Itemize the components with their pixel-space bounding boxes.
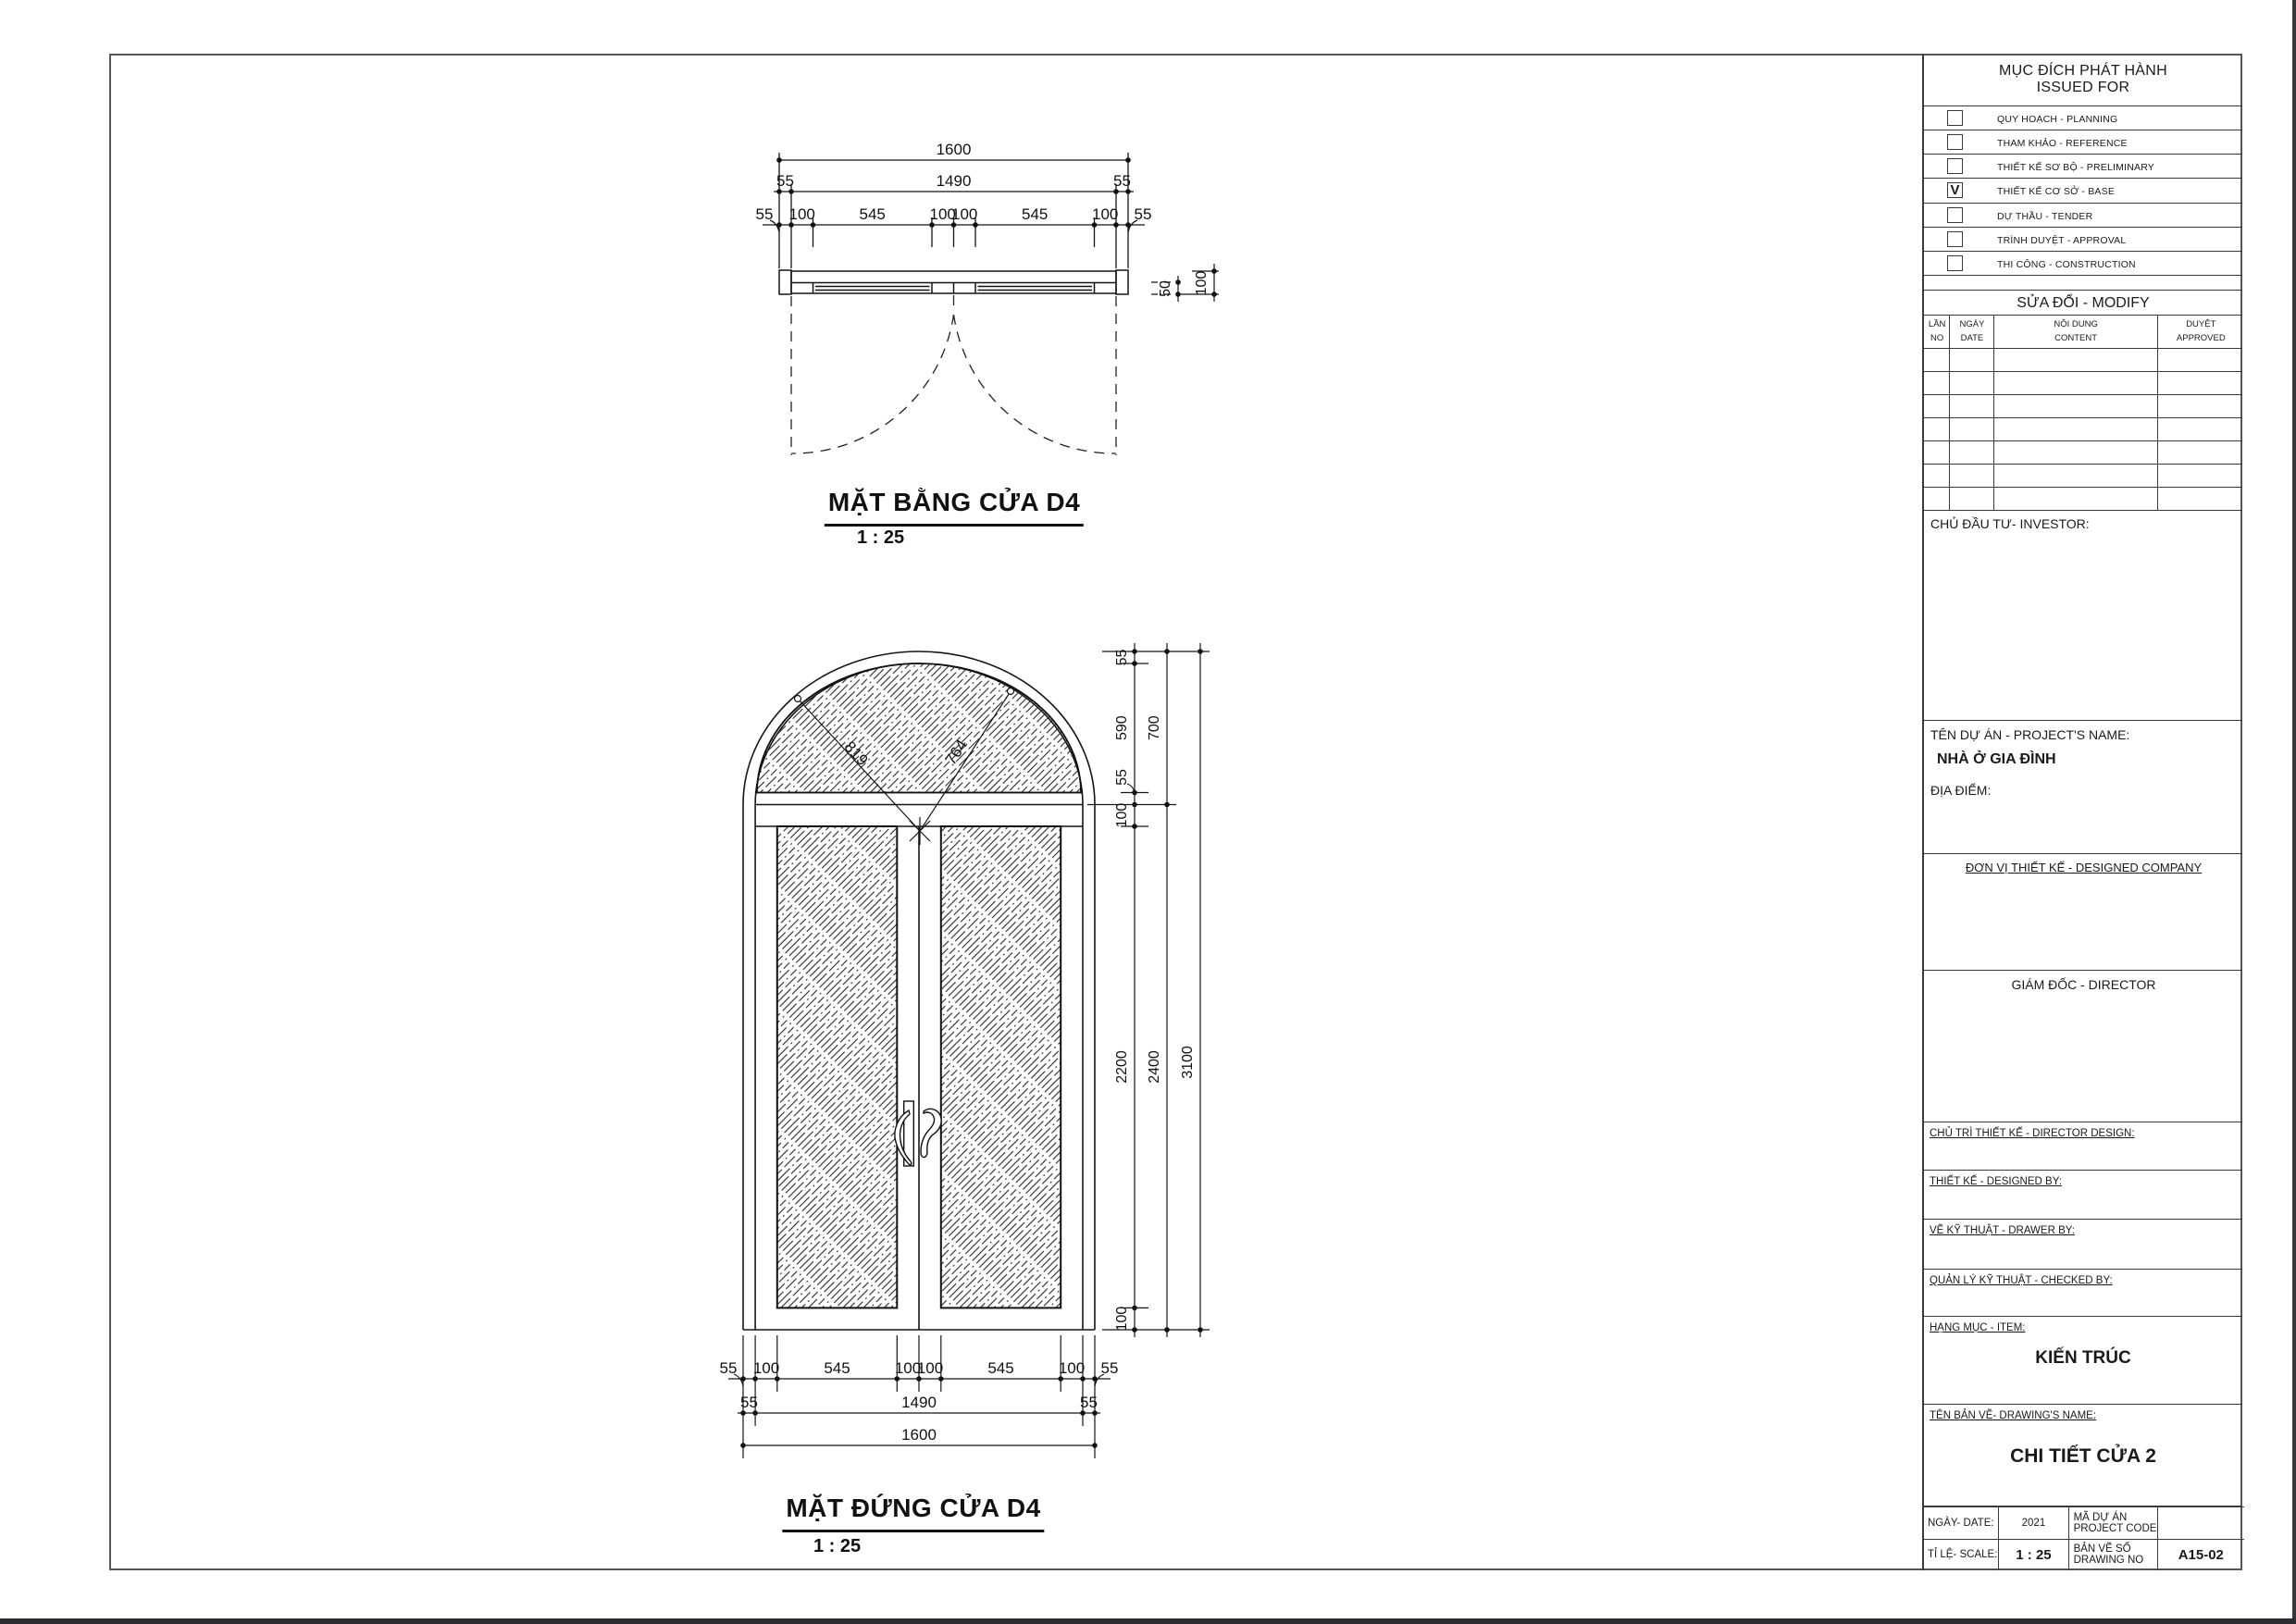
svg-text:55: 55 bbox=[720, 1359, 738, 1377]
checkbox-reference bbox=[1947, 134, 1963, 150]
drawing-no-label: BẢN VẼ SỐ DRAWING NO bbox=[2074, 1543, 2144, 1566]
company-label: ĐƠN VỊ THIẾT KẾ - DESIGNED COMPANY bbox=[1924, 854, 2242, 874]
svg-text:2400: 2400 bbox=[1147, 1050, 1162, 1084]
checkbox-construction bbox=[1947, 255, 1963, 271]
svg-text:545: 545 bbox=[1022, 205, 1048, 223]
project-label: TÊN DỰ ÁN - PROJECT'S NAME: bbox=[1924, 721, 2242, 742]
issued-for-row: V THIẾT KẾ CƠ SỞ - BASE bbox=[1924, 179, 2242, 203]
drawing-name-label: TÊN BẢN VẼ- DRAWING'S NAME: bbox=[1924, 1405, 2242, 1421]
issued-for-row: QUY HOẠCH - PLANNING bbox=[1924, 106, 2242, 130]
svg-text:545: 545 bbox=[860, 205, 886, 223]
door-handles bbox=[895, 1101, 941, 1166]
plan-dimensions: 1600 55 1490 55 55 100 545 100 100 545 1… bbox=[756, 141, 1152, 223]
svg-text:55: 55 bbox=[776, 172, 794, 190]
checkbox-tender bbox=[1947, 207, 1963, 223]
director-label: GIÁM ĐỐC - DIRECTOR bbox=[1924, 971, 2242, 992]
svg-text:1490: 1490 bbox=[901, 1394, 937, 1411]
location-label: ĐỊA ĐIỂM: bbox=[1924, 768, 2242, 798]
checkbox-base-checked: V bbox=[1947, 182, 1963, 198]
plan-view-title: MẶT BẰNG CỬA D4 bbox=[825, 488, 1084, 527]
issued-for-row: TRÌNH DUYỆT - APPROVAL bbox=[1924, 228, 2242, 252]
issued-for-header: MỤC ĐÍCH PHÁT HÀNH ISSUED FOR bbox=[1924, 54, 2242, 106]
svg-text:2200: 2200 bbox=[1114, 1050, 1130, 1084]
project-name: NHÀ Ở GIA ĐÌNH bbox=[1924, 742, 2242, 768]
svg-text:1490: 1490 bbox=[937, 172, 972, 190]
issued-for-row: THIẾT KẾ SƠ BỘ - PRELIMINARY bbox=[1924, 155, 2242, 179]
right-handle-lever bbox=[921, 1109, 941, 1157]
checkbox-preliminary bbox=[1947, 158, 1963, 174]
item-label: HẠNG MỤC - ITEM: bbox=[1924, 1317, 2242, 1333]
designed-by-section: THIẾT KẾ - DESIGNED BY: bbox=[1924, 1171, 2242, 1220]
drawing-name-value: CHI TIẾT CỬA 2 bbox=[1924, 1445, 2242, 1468]
project-code-label: MÃ DỰ ÁN PROJECT CODE bbox=[2074, 1512, 2157, 1534]
elevation-dim-total-height: 3100 bbox=[1180, 1046, 1196, 1079]
plan-view-scale: 1 : 25 bbox=[857, 527, 904, 549]
page-edge-bottom bbox=[0, 1618, 2296, 1624]
fanlight-glass bbox=[757, 663, 1081, 793]
svg-text:100: 100 bbox=[1114, 1307, 1130, 1332]
modify-table: LẦN NO NGÀY DATE NỘI DUNG CONTENT DUYỆT … bbox=[1924, 316, 2242, 510]
svg-text:545: 545 bbox=[824, 1359, 850, 1377]
date-value: 2021 bbox=[1999, 1506, 2068, 1539]
svg-text:55: 55 bbox=[1114, 650, 1130, 666]
scale-value: 1 : 25 bbox=[1999, 1539, 2068, 1571]
director-section: GIÁM ĐỐC - DIRECTOR bbox=[1924, 971, 2242, 1122]
issued-for-title-en: ISSUED FOR bbox=[1924, 80, 2242, 96]
svg-text:700: 700 bbox=[1147, 715, 1162, 740]
title-block: MỤC ĐÍCH PHÁT HÀNH ISSUED FOR QUY HOẠCH … bbox=[1922, 54, 2242, 1570]
drawing-name-section: TÊN BẢN VẼ- DRAWING'S NAME: CHI TIẾT CỬA… bbox=[1924, 1405, 2242, 1506]
plan-dim-leaf-thickness: 50 bbox=[1158, 280, 1173, 297]
checkbox-planning bbox=[1947, 110, 1963, 126]
svg-text:55: 55 bbox=[1135, 205, 1152, 223]
modify-header: SỬA ĐỔI - MODIFY bbox=[1924, 290, 2242, 316]
plan-dim-wall-thickness: 100 bbox=[1194, 271, 1210, 296]
investor-label: CHỦ ĐẦU TƯ- INVESTOR: bbox=[1924, 510, 2242, 531]
elevation-dim-total-width: 1600 bbox=[901, 1426, 937, 1444]
svg-text:55: 55 bbox=[1101, 1359, 1119, 1377]
left-leaf-glass bbox=[777, 826, 898, 1308]
svg-text:100: 100 bbox=[789, 205, 815, 223]
svg-text:100: 100 bbox=[1092, 205, 1118, 223]
checker-label: QUẢN LÝ KỸ THUẬT - CHECKED BY: bbox=[1924, 1270, 2242, 1286]
project-section: TÊN DỰ ÁN - PROJECT'S NAME: NHÀ Ở GIA ĐÌ… bbox=[1924, 721, 2242, 854]
svg-text:545: 545 bbox=[987, 1359, 1013, 1377]
svg-text:100: 100 bbox=[753, 1359, 779, 1377]
right-leaf-glass bbox=[941, 826, 1061, 1308]
svg-text:55: 55 bbox=[1113, 172, 1131, 190]
elevation-right-dims bbox=[1087, 643, 1210, 1337]
svg-text:55: 55 bbox=[756, 205, 774, 223]
issued-for-row: DỰ THẦU - TENDER bbox=[1924, 204, 2242, 228]
svg-text:100: 100 bbox=[1059, 1359, 1085, 1377]
plan-dim-total: 1600 bbox=[937, 141, 972, 158]
issued-for-row: THI CÔNG - CONSTRUCTION bbox=[1924, 252, 2242, 276]
elevation-view-scale: 1 : 25 bbox=[813, 1536, 861, 1557]
issued-for-title-vi: MỤC ĐÍCH PHÁT HÀNH bbox=[1924, 63, 2242, 80]
investor-section: CHỦ ĐẦU TƯ- INVESTOR: bbox=[1924, 510, 2242, 721]
issued-for-row: THAM KHẢO - REFERENCE bbox=[1924, 130, 2242, 155]
svg-text:55: 55 bbox=[1080, 1394, 1098, 1411]
director-design-section: CHỦ TRÌ THIẾT KẾ - DIRECTOR DESIGN: bbox=[1924, 1122, 2242, 1171]
director-design-label: CHỦ TRÌ THIẾT KẾ - DIRECTOR DESIGN: bbox=[1924, 1122, 2242, 1139]
drawing-no-value: A15-02 bbox=[2158, 1539, 2244, 1571]
project-code-value bbox=[2158, 1506, 2244, 1539]
elevation-view-drawing: 819 764 55 590 55 100 2200 100 700 2400 … bbox=[689, 606, 1282, 1490]
plan-door-swing bbox=[791, 295, 1116, 455]
plan-view-drawing: 1600 55 1490 55 55 100 545 100 100 545 1… bbox=[703, 120, 1277, 490]
date-label: NGÀY- DATE: bbox=[1924, 1506, 1999, 1539]
checker-section: QUẢN LÝ KỸ THUẬT - CHECKED BY: bbox=[1924, 1270, 2242, 1317]
elevation-view-title: MẶT ĐỨNG CỬA D4 bbox=[782, 1494, 1044, 1532]
svg-text:100: 100 bbox=[1114, 803, 1130, 828]
item-section: HẠNG MỤC - ITEM: KIẾN TRÚC bbox=[1924, 1317, 2242, 1405]
svg-text:100: 100 bbox=[917, 1359, 943, 1377]
page-edge-right bbox=[2292, 0, 2296, 1624]
svg-text:55: 55 bbox=[1114, 769, 1130, 786]
svg-text:590: 590 bbox=[1114, 715, 1130, 740]
company-section: ĐƠN VỊ THIẾT KẾ - DESIGNED COMPANY bbox=[1924, 854, 2242, 971]
svg-text:55: 55 bbox=[740, 1394, 758, 1411]
item-value: KIẾN TRÚC bbox=[1924, 1348, 2242, 1369]
scale-label: TỈ LỆ- SCALE: bbox=[1924, 1539, 1999, 1571]
svg-text:100: 100 bbox=[951, 205, 977, 223]
drawer-label: VẼ KỸ THUẬT - DRAWER BY: bbox=[1924, 1220, 2242, 1236]
designed-by-label: THIẾT KẾ - DESIGNED BY: bbox=[1924, 1171, 2242, 1187]
sheet-info-table: NGÀY- DATE: 2021 MÃ DỰ ÁN PROJECT CODE T… bbox=[1924, 1506, 2242, 1570]
checkbox-approval bbox=[1947, 231, 1963, 247]
drawer-section: VẼ KỸ THUẬT - DRAWER BY: bbox=[1924, 1220, 2242, 1270]
